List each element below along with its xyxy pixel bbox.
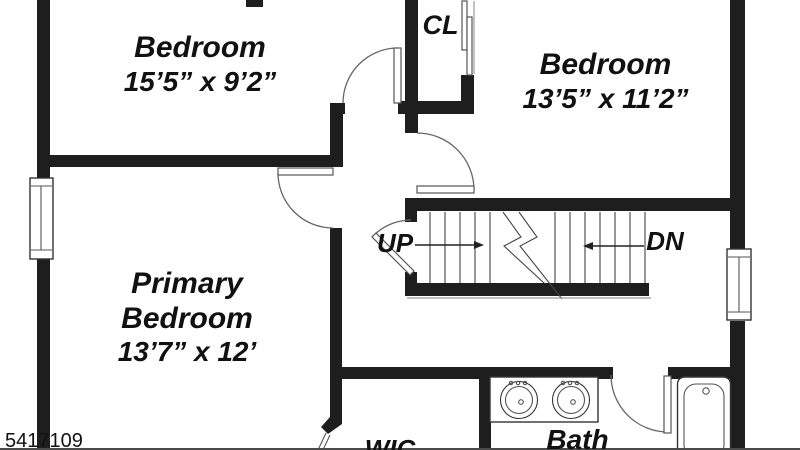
door-bedroom1 [343, 48, 401, 103]
door-primary-bedroom [278, 168, 333, 228]
window-right [727, 249, 751, 320]
room-label-bedroom1-name: Bedroom [90, 33, 310, 63]
door-bath [611, 375, 671, 433]
room-label-bedroom2-name: Bedroom [498, 50, 713, 80]
door-wic [318, 433, 330, 450]
room-label-primary-line1: Primary [77, 269, 297, 299]
room-label-bedroom2-dims: 13’5” x 11’2” [493, 85, 718, 113]
room-label-primary-dims: 13’7” x 12’ [77, 338, 297, 366]
room-label-primary-line2: Bedroom [77, 304, 297, 334]
stairs-down-arrow [583, 242, 644, 250]
wall-chamfer [321, 417, 342, 434]
stairs-break-line [503, 212, 562, 299]
room-label-wic: WIC [353, 436, 427, 450]
room-label-bedroom1-dims: 15’5” x 9’2” [90, 68, 310, 96]
stairs-treads [430, 212, 645, 283]
floor-plan: Bedroom 15’5” x 9’2” Bedroom 13’5” x 11’… [0, 0, 800, 450]
listing-id-watermark: 5417109 [5, 431, 83, 450]
closet-sliding-doors [462, 1, 474, 75]
room-label-bath: Bath [540, 426, 615, 450]
door-bedroom2 [417, 133, 474, 193]
stairs-up-arrow [415, 241, 484, 249]
vanity-double-sink [490, 377, 598, 422]
bathtub [678, 377, 731, 450]
stairs-up-label: UP [370, 230, 420, 256]
room-label-closet: CL [418, 12, 463, 39]
window-left [30, 178, 53, 259]
stairs-down-label: DN [640, 228, 690, 254]
